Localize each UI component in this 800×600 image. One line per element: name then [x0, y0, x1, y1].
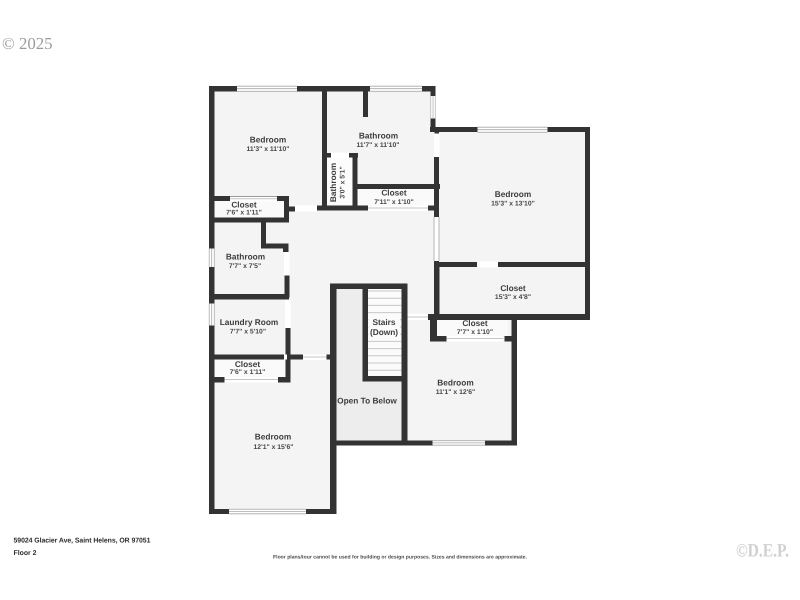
svg-text:15'3" x 13'10": 15'3" x 13'10"	[491, 201, 535, 208]
svg-text:Closet: Closet	[231, 200, 257, 210]
svg-text:7'11" x 1'10": 7'11" x 1'10"	[374, 199, 414, 206]
svg-text:© 2025: © 2025	[2, 34, 53, 53]
svg-text:Bedroom: Bedroom	[250, 135, 286, 145]
svg-text:15'3" x 4'8": 15'3" x 4'8"	[495, 294, 531, 301]
svg-text:11'7" x 11'10": 11'7" x 11'10"	[357, 142, 400, 149]
svg-text:7'7" x 5'10": 7'7" x 5'10"	[230, 329, 266, 336]
svg-text:Closet: Closet	[462, 318, 488, 328]
svg-text:©D.E.P.: ©D.E.P.	[736, 541, 789, 562]
svg-text:Bedroom: Bedroom	[255, 432, 291, 442]
svg-text:7'7" x 7'5": 7'7" x 7'5"	[229, 263, 261, 270]
svg-text:Floor plans/tour cannot be use: Floor plans/tour cannot be used for buil…	[273, 554, 527, 560]
svg-text:Closet: Closet	[235, 359, 261, 369]
svg-text:Bathroom: Bathroom	[328, 163, 338, 202]
svg-text:Closet: Closet	[381, 188, 407, 198]
svg-text:Bedroom: Bedroom	[495, 189, 531, 199]
svg-text:11'1" x 12'6": 11'1" x 12'6"	[436, 389, 476, 396]
svg-text:7'6" x 1'11": 7'6" x 1'11"	[230, 369, 266, 376]
svg-text:7'7" x 1'10": 7'7" x 1'10"	[457, 329, 493, 336]
svg-text:59024 Glacier Ave, Saint Helen: 59024 Glacier Ave, Saint Helens, OR 9705…	[14, 537, 151, 544]
svg-text:Open To Below: Open To Below	[337, 396, 397, 406]
svg-text:Laundry Room: Laundry Room	[220, 317, 279, 327]
svg-text:Bathroom: Bathroom	[226, 252, 265, 262]
svg-text:11'3" x 11'10": 11'3" x 11'10"	[247, 146, 290, 153]
svg-text:(Down): (Down)	[370, 327, 398, 337]
svg-text:Closet: Closet	[500, 283, 526, 293]
svg-text:Floor 2: Floor 2	[14, 550, 37, 557]
svg-text:7'6" x 1'11": 7'6" x 1'11"	[226, 210, 262, 217]
svg-text:Stairs: Stairs	[372, 317, 395, 327]
svg-text:Bathroom: Bathroom	[359, 131, 398, 141]
svg-text:Bedroom: Bedroom	[437, 378, 473, 388]
svg-text:12'1" x 15'6": 12'1" x 15'6"	[254, 444, 294, 451]
svg-text:3'0" x 5'1": 3'0" x 5'1"	[340, 166, 347, 198]
